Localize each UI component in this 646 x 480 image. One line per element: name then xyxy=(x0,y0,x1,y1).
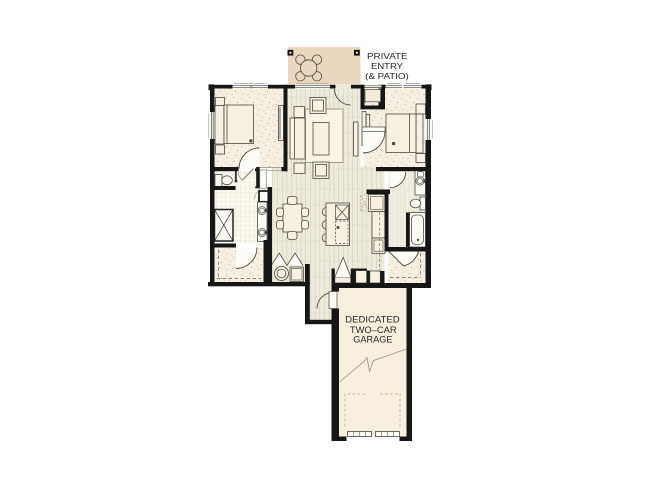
svg-text:DEDICATED: DEDICATED xyxy=(345,315,400,325)
svg-text:TWO–CAR: TWO–CAR xyxy=(350,325,397,335)
svg-text:GARAGE: GARAGE xyxy=(353,334,392,344)
svg-text:PRIVATE: PRIVATE xyxy=(367,51,408,61)
svg-text:(& PATIO): (& PATIO) xyxy=(365,71,409,81)
svg-text:ENTRY: ENTRY xyxy=(371,61,403,71)
